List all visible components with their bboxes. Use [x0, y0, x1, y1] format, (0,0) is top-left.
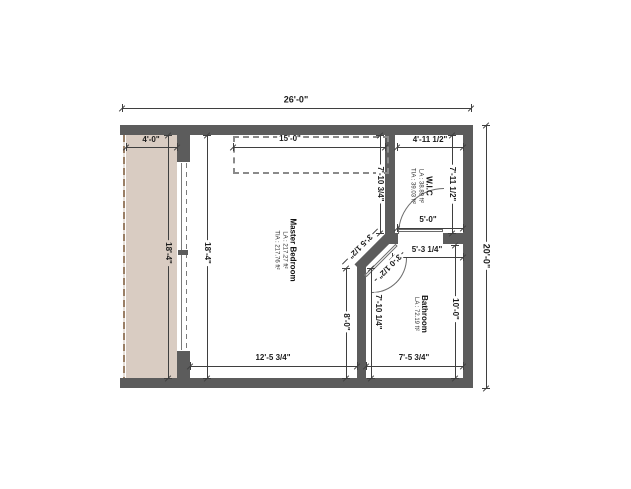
wall: [443, 233, 463, 244]
wall: [357, 262, 366, 378]
dimension-label: 18'-4": [164, 240, 172, 266]
room-area-text: TIA : 39.03 ft²: [409, 168, 417, 204]
wall: [177, 351, 190, 378]
dimension-label: 5'-0": [417, 216, 438, 224]
dimension-label: 26'-0": [282, 96, 310, 105]
dimension-label: 4'-11 1/2": [411, 136, 450, 144]
dimension-label: 5'-3 1/4": [410, 246, 445, 254]
sliding-door-track: [181, 163, 182, 350]
room-area-text: LA : 217.27 ft²: [280, 218, 288, 281]
wic-door-leaf: [398, 229, 443, 232]
dimension-label: 7'-5 3/4": [397, 354, 432, 362]
room-area-text: LA : 38.89 ft²: [416, 168, 424, 204]
dimension-line: [397, 228, 463, 229]
dimension-line: [397, 147, 463, 148]
wall: [177, 135, 190, 162]
dimension-label: 4'-0": [140, 136, 161, 144]
dimension-label: 7'-11 1/2": [448, 165, 456, 204]
dimension-line: [126, 147, 177, 148]
balcony-railing-line: [123, 135, 125, 378]
room-title: W.I.C: [424, 168, 434, 204]
room-label-bathroom: BathroomLA : 72.19 ft²: [411, 295, 429, 333]
wall: [120, 378, 473, 388]
room-title: Bathroom: [419, 295, 429, 333]
dimension-label: 7'-10 3/4": [376, 164, 384, 203]
dimension-label: 15'-0": [277, 135, 303, 143]
dimension-label: 12'-5 3/4": [253, 354, 292, 362]
sliding-door-panel: [186, 163, 187, 350]
room-title: Master Bedroom: [288, 218, 298, 281]
dimension-line: [190, 366, 357, 367]
dimension-label: 8'-0": [342, 311, 350, 332]
sliding-door-handle: [178, 250, 188, 255]
room-label-wic: W.I.CLA : 38.89 ft²TIA : 39.03 ft²: [409, 168, 434, 204]
sliding-door-opening: [177, 162, 190, 351]
dimension-label: 10'-0": [451, 296, 459, 322]
dimension-label: 18'-4": [203, 240, 211, 266]
dimension-line: [233, 147, 385, 148]
floor-plan: 26'-0"20'-0"4'-0"18'-4"18'-4"15'-0"7'-10…: [0, 0, 631, 489]
dimension-line: [366, 366, 463, 367]
dimension-line: [371, 268, 372, 378]
room-area-text: TIA : 217.76 ft²: [273, 218, 281, 281]
dimension-label: 7'-10 1/4": [374, 292, 382, 331]
dimension-label: 20'-0": [482, 242, 491, 270]
room-label-master-bedroom: Master BedroomLA : 217.27 ft²TIA : 217.7…: [273, 218, 298, 281]
room-area-text: LA : 72.19 ft²: [411, 295, 419, 333]
dimension-line: [122, 108, 471, 109]
closet-outline: [233, 136, 389, 174]
